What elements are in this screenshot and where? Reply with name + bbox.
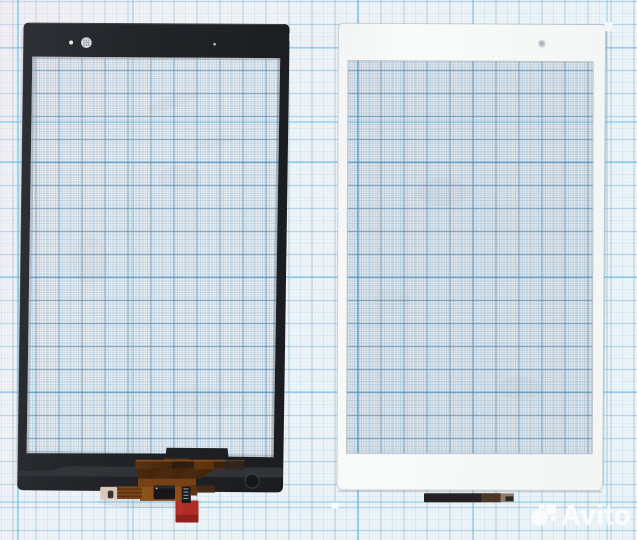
- svg-text:Avito: Avito: [561, 500, 631, 531]
